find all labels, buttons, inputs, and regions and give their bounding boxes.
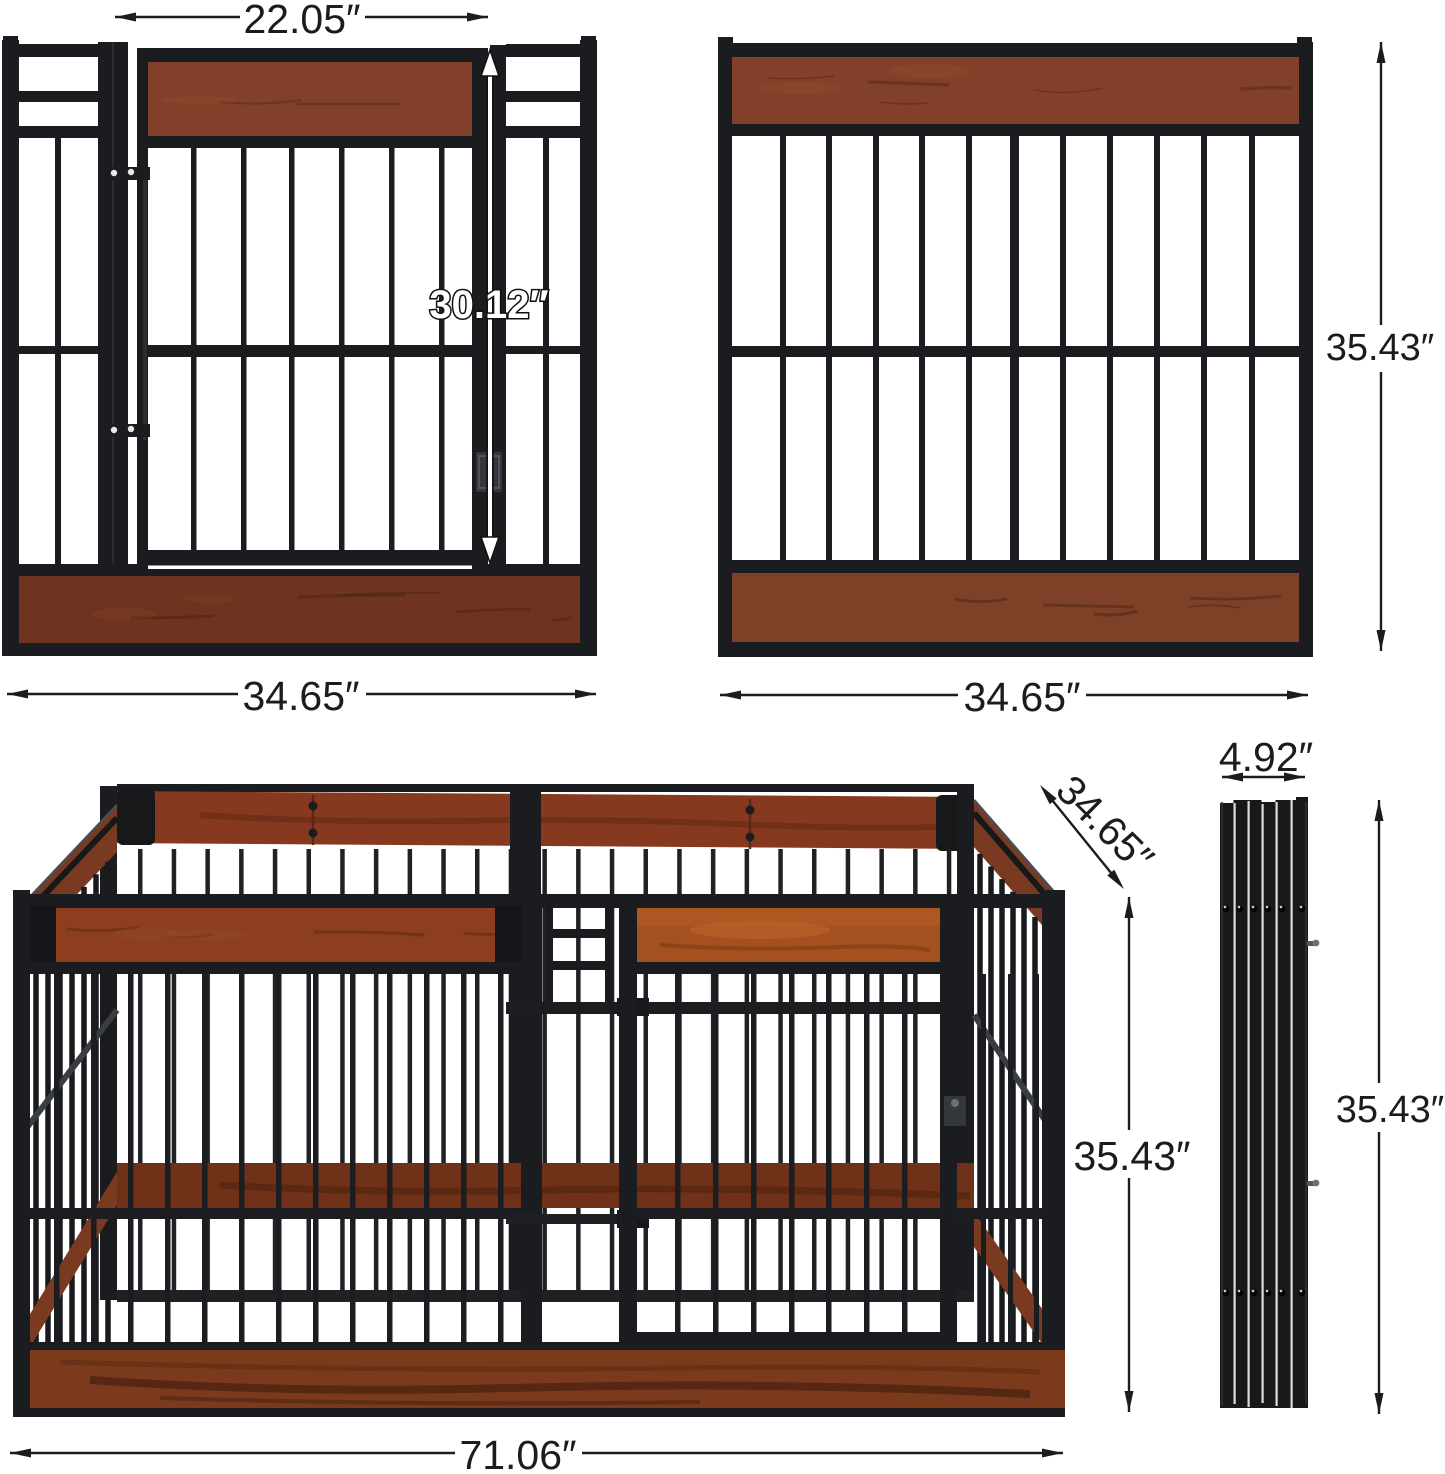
svg-text:30.12″: 30.12″ bbox=[429, 283, 548, 327]
svg-text:22.05″: 22.05″ bbox=[243, 0, 360, 42]
svg-text:34.65″: 34.65″ bbox=[963, 674, 1080, 720]
svg-text:35.43″: 35.43″ bbox=[1326, 327, 1435, 369]
svg-text:35.43″: 35.43″ bbox=[1073, 1133, 1190, 1179]
svg-text:4.92″: 4.92″ bbox=[1219, 734, 1313, 780]
svg-text:35.43″: 35.43″ bbox=[1336, 1089, 1445, 1131]
svg-text:71.06″: 71.06″ bbox=[459, 1432, 576, 1474]
svg-text:34.65″: 34.65″ bbox=[242, 673, 359, 719]
